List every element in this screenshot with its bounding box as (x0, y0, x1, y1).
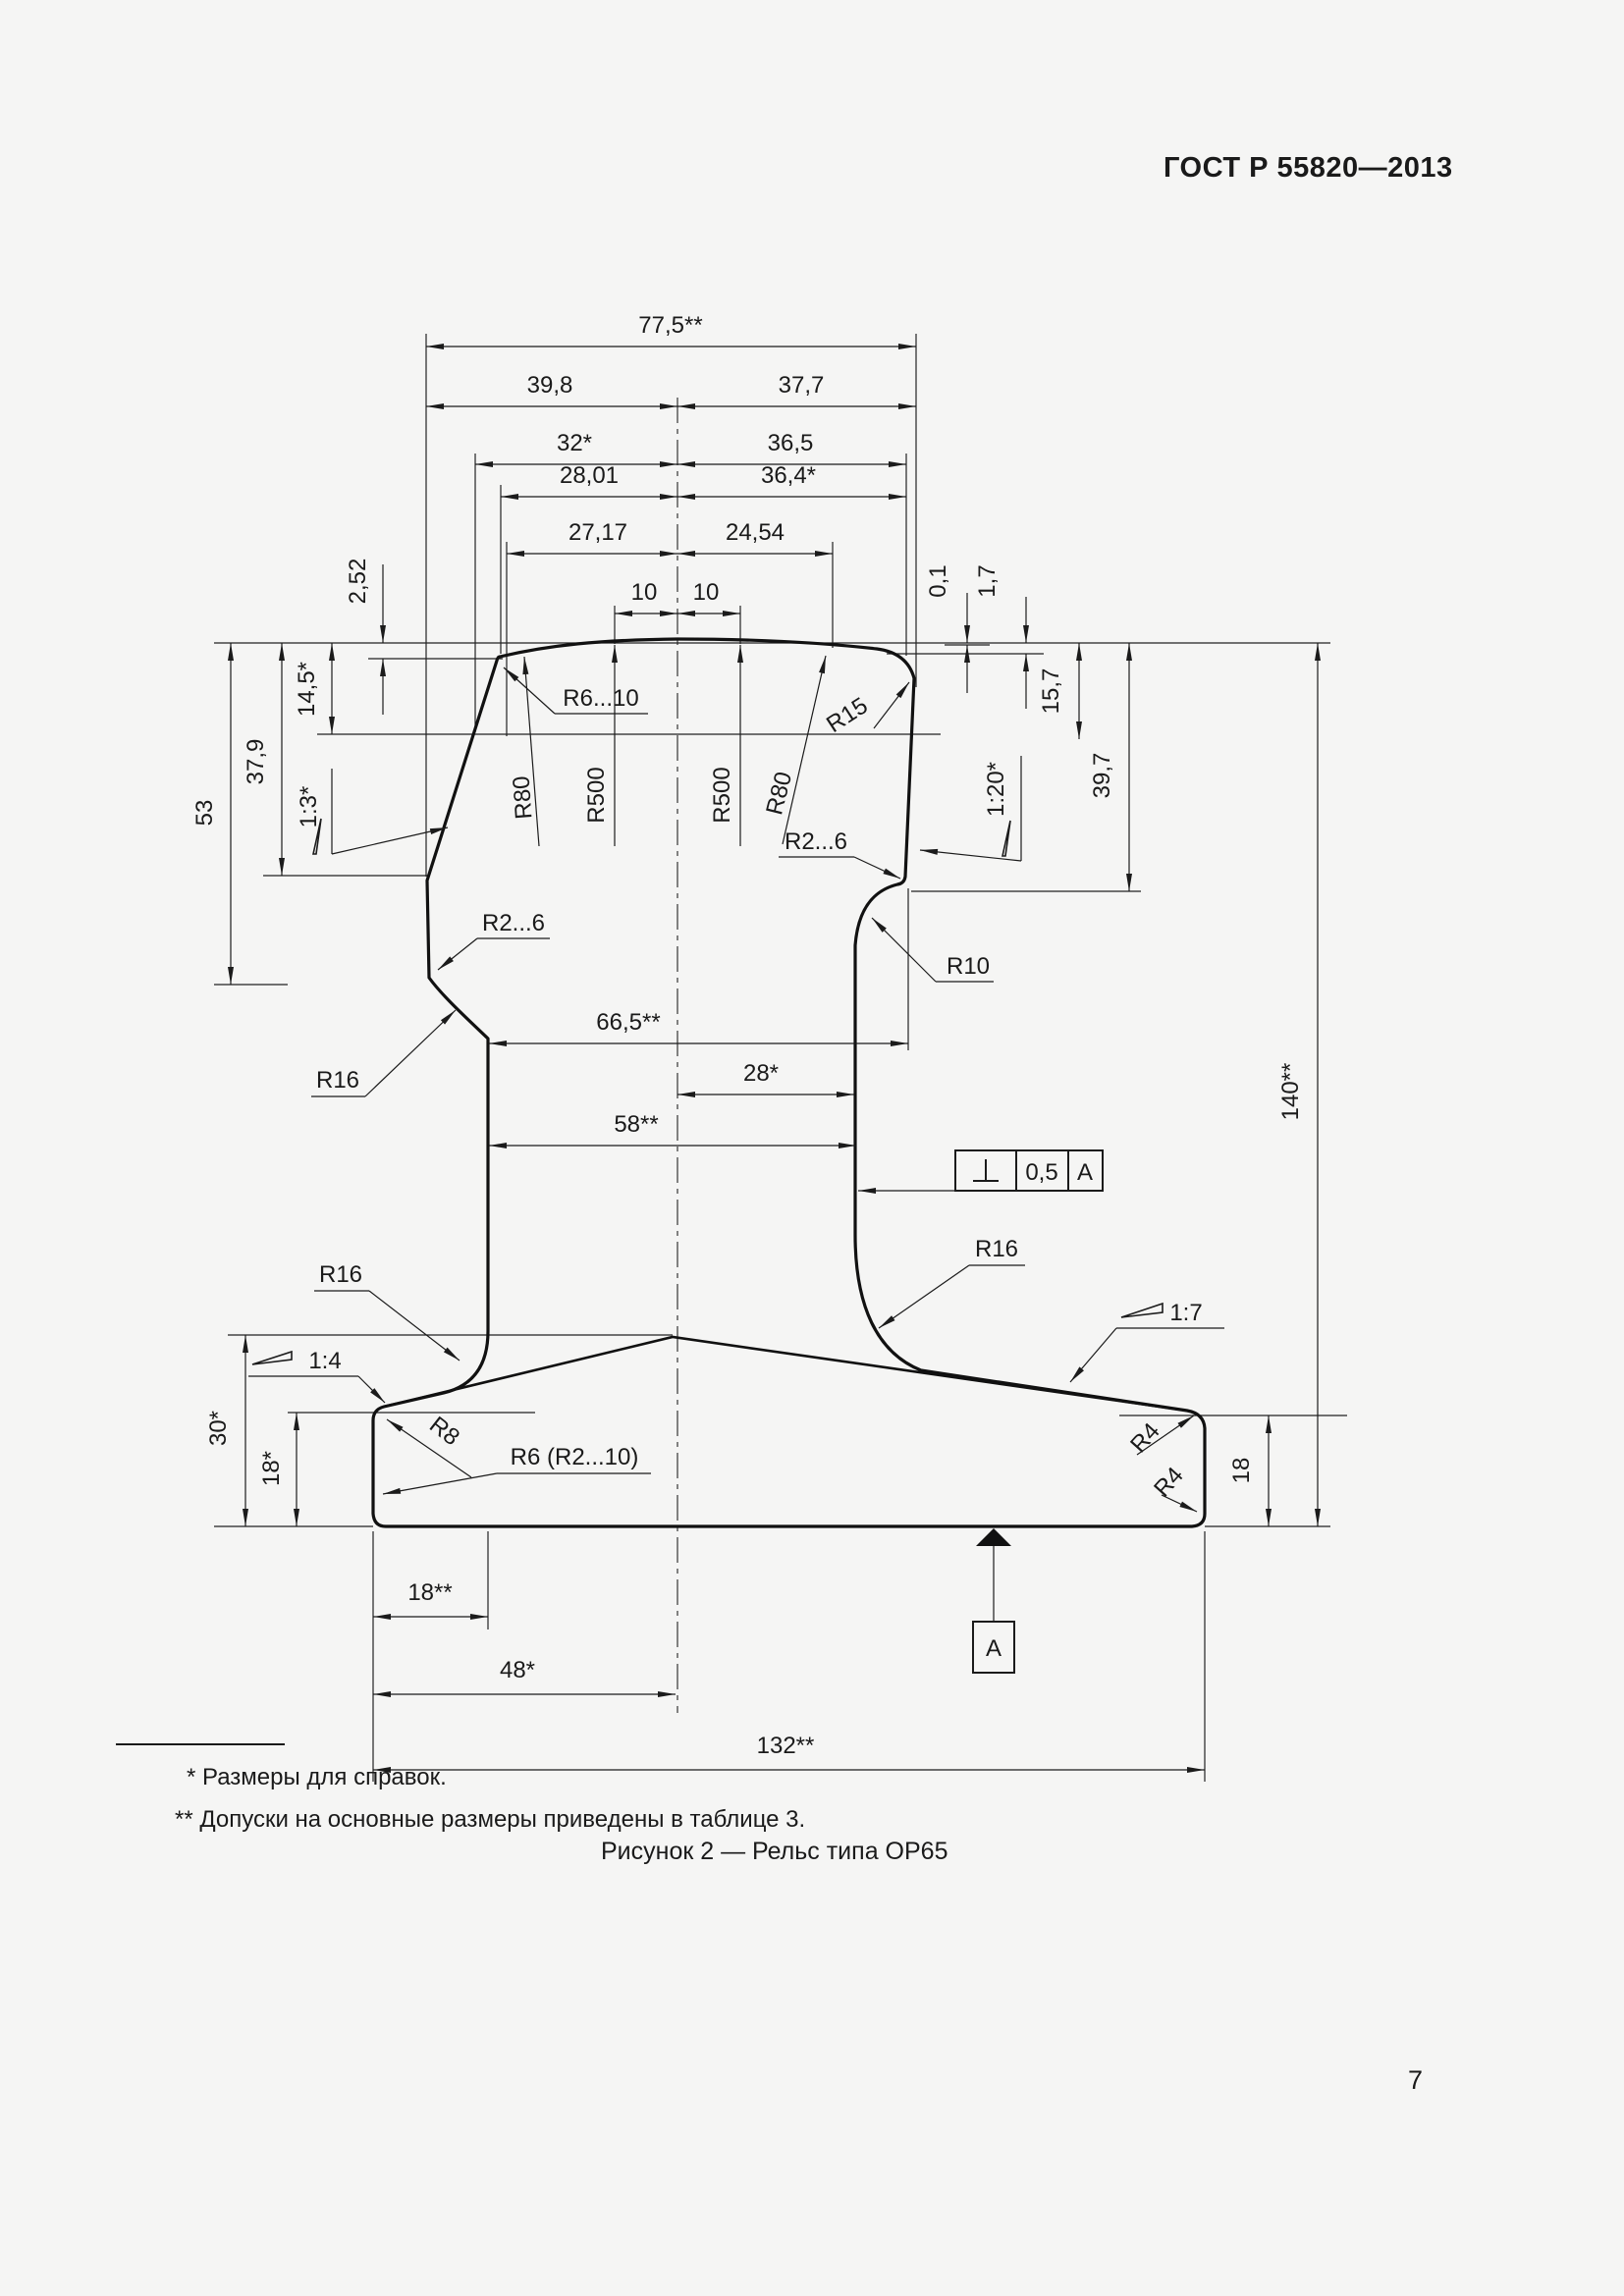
label-r2-6-left: R2...6 (482, 910, 545, 936)
dim-2-52: 2,52 (345, 559, 371, 605)
slope-callouts: 1:3* 1:20* 1:4 1:7 (248, 756, 1224, 1403)
dim-18-foot: 18** (407, 1579, 452, 1606)
dim-32: 32* (557, 430, 592, 456)
dim-37-7: 37,7 (779, 372, 825, 399)
dim-18-right: 18 (1228, 1458, 1255, 1484)
label-slope-1-20: 1:20* (983, 762, 1009, 817)
rail-profile-drawing: 77,5** 39,8 37,7 32* 36,5 28,01 36,4* 27… (0, 0, 1624, 2296)
dim-36-5: 36,5 (768, 430, 814, 456)
label-r4-top: R4 (1125, 1418, 1165, 1459)
label-slope-1-7: 1:7 (1169, 1300, 1202, 1326)
dim-53: 53 (191, 800, 218, 827)
dim-140: 140** (1277, 1063, 1304, 1121)
tolerance-datum-ref: A (1077, 1159, 1093, 1186)
dim-0-1: 0,1 (925, 564, 951, 597)
dim-66-5: 66,5** (596, 1009, 660, 1036)
dim-1-7: 1,7 (974, 564, 1001, 597)
dim-14-5: 14,5* (294, 662, 320, 717)
label-r16-lower-left: R16 (319, 1261, 362, 1288)
footnote-reference: * Размеры для справок. (187, 1764, 447, 1791)
label-r6-10: R6...10 (563, 685, 638, 712)
label-r80-left: R80 (509, 775, 538, 821)
label-r16-upper-left: R16 (316, 1067, 359, 1094)
dim-27-17: 27,17 (568, 519, 627, 546)
extension-lines (214, 334, 1347, 1782)
rail-outline (373, 639, 1205, 1526)
dim-37-9: 37,9 (243, 739, 269, 785)
label-slope-1-4: 1:4 (308, 1348, 341, 1374)
dim-39-7: 39,7 (1089, 753, 1115, 799)
label-r80-right: R80 (761, 770, 797, 818)
label-r6-r2-10: R6 (R2...10) (511, 1444, 639, 1470)
dim-77-5: 77,5** (638, 312, 702, 339)
label-r8: R8 (424, 1412, 464, 1451)
datum-letter: A (986, 1635, 1001, 1662)
figure-caption: Рисунок 2 — Рельс типа ОР65 (601, 1838, 947, 1866)
top-dimensions: 77,5** 39,8 37,7 32* 36,5 28,01 36,4* 27… (426, 312, 916, 614)
dim-18-left: 18* (258, 1451, 285, 1486)
tolerance-value: 0,5 (1025, 1159, 1057, 1186)
foot-slope-lines (384, 1337, 1187, 1411)
page-number: 7 (1408, 2065, 1423, 2096)
dim-10-right: 10 (693, 579, 720, 606)
dim-39-8: 39,8 (527, 372, 573, 399)
footnote-tolerances: ** Допуски на основные размеры приведены… (175, 1806, 805, 1834)
datum-triangle-icon (976, 1528, 1011, 1546)
dim-48: 48* (500, 1657, 535, 1683)
label-r16-lower-right: R16 (975, 1236, 1018, 1262)
dim-10-left: 10 (631, 579, 658, 606)
label-r4-bottom: R4 (1149, 1463, 1189, 1503)
dim-24-54: 24,54 (726, 519, 785, 546)
tolerance-frame: 0,5 A (858, 1150, 1103, 1191)
bottom-dimensions: 18** 48* 132** (373, 1579, 1205, 1770)
label-r500-left: R500 (583, 767, 610, 823)
rail-profile (373, 639, 1205, 1526)
dim-28: 28* (743, 1060, 779, 1087)
dim-36-4: 36,4* (761, 462, 816, 489)
dim-28-01: 28,01 (560, 462, 619, 489)
datum-flag: A (973, 1528, 1014, 1673)
perpendicular-icon (973, 1159, 999, 1181)
label-slope-1-3: 1:3* (296, 786, 322, 828)
document-page: ГОСТ Р 55820—2013 (0, 0, 1624, 2296)
dim-58: 58** (614, 1111, 658, 1138)
label-r500-right: R500 (709, 767, 735, 823)
footnote-rule (116, 1743, 285, 1745)
offset-dimensions: 2,52 0,1 1,7 (345, 559, 1026, 715)
middle-dimensions: 66,5** 28* 58** (489, 1009, 908, 1146)
dim-30: 30* (205, 1411, 232, 1446)
dim-15-7: 15,7 (1038, 668, 1064, 715)
label-r2-6-right: R2...6 (785, 828, 847, 855)
label-r10: R10 (947, 953, 990, 980)
dim-132: 132** (757, 1733, 815, 1759)
label-r15: R15 (822, 692, 873, 738)
